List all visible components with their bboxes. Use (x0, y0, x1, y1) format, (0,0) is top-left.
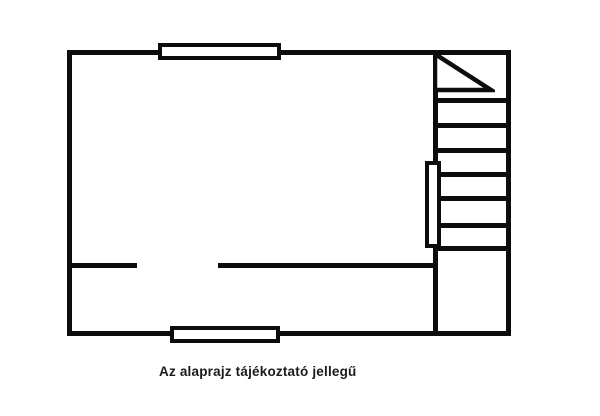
stair-tread (433, 148, 511, 153)
stair-tread (433, 123, 511, 128)
floor-plan-canvas: Az alaprajz tájékoztató jellegű (0, 0, 600, 416)
stair-tread (433, 196, 511, 201)
interior-wall-left-segment (67, 263, 137, 268)
stair-tread (433, 172, 511, 177)
stair-tread (433, 223, 511, 228)
wall-right (506, 50, 511, 336)
wall-left (67, 50, 72, 336)
stair-direction-triangle-icon (433, 52, 495, 94)
window-top (158, 43, 281, 60)
stair-tread (433, 98, 511, 103)
window-bottom (170, 326, 280, 343)
caption: Az alaprajz tájékoztató jellegű (159, 364, 357, 379)
stair-tread (433, 246, 511, 251)
wall-bottom (67, 331, 511, 336)
interior-wall-right-segment (218, 263, 438, 268)
stairwell-door (425, 161, 441, 248)
